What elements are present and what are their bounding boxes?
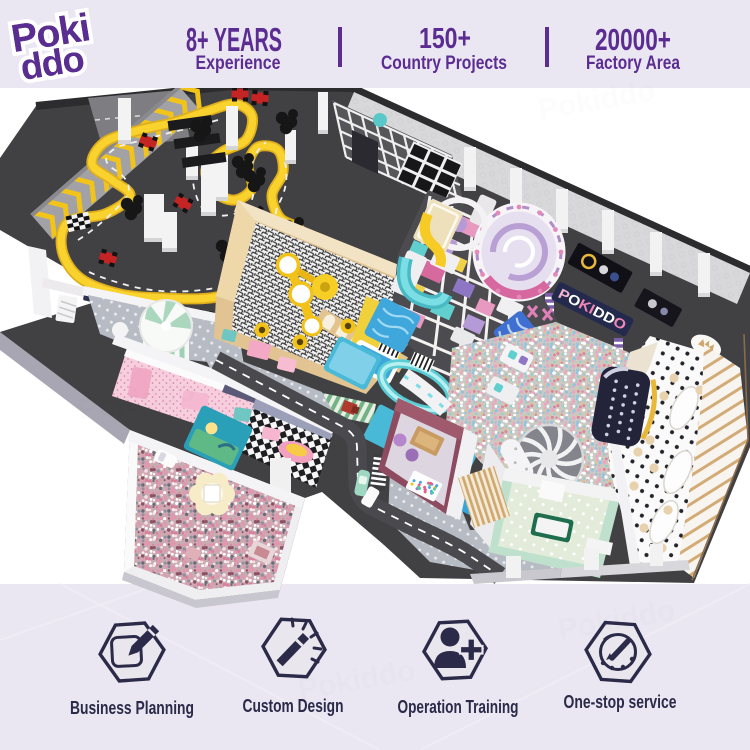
- svg-text:Business Planning: Business Planning: [70, 698, 194, 718]
- svg-text:One-stop service: One-stop service: [564, 692, 677, 712]
- svg-text:Operation Training: Operation Training: [398, 697, 519, 717]
- svg-text:Experience: Experience: [196, 53, 281, 74]
- svg-text:Factory Area: Factory Area: [586, 53, 680, 74]
- svg-text:20000+: 20000+: [595, 22, 671, 57]
- svg-text:150+: 150+: [419, 23, 471, 55]
- svg-text:Country Projects: Country Projects: [381, 53, 507, 74]
